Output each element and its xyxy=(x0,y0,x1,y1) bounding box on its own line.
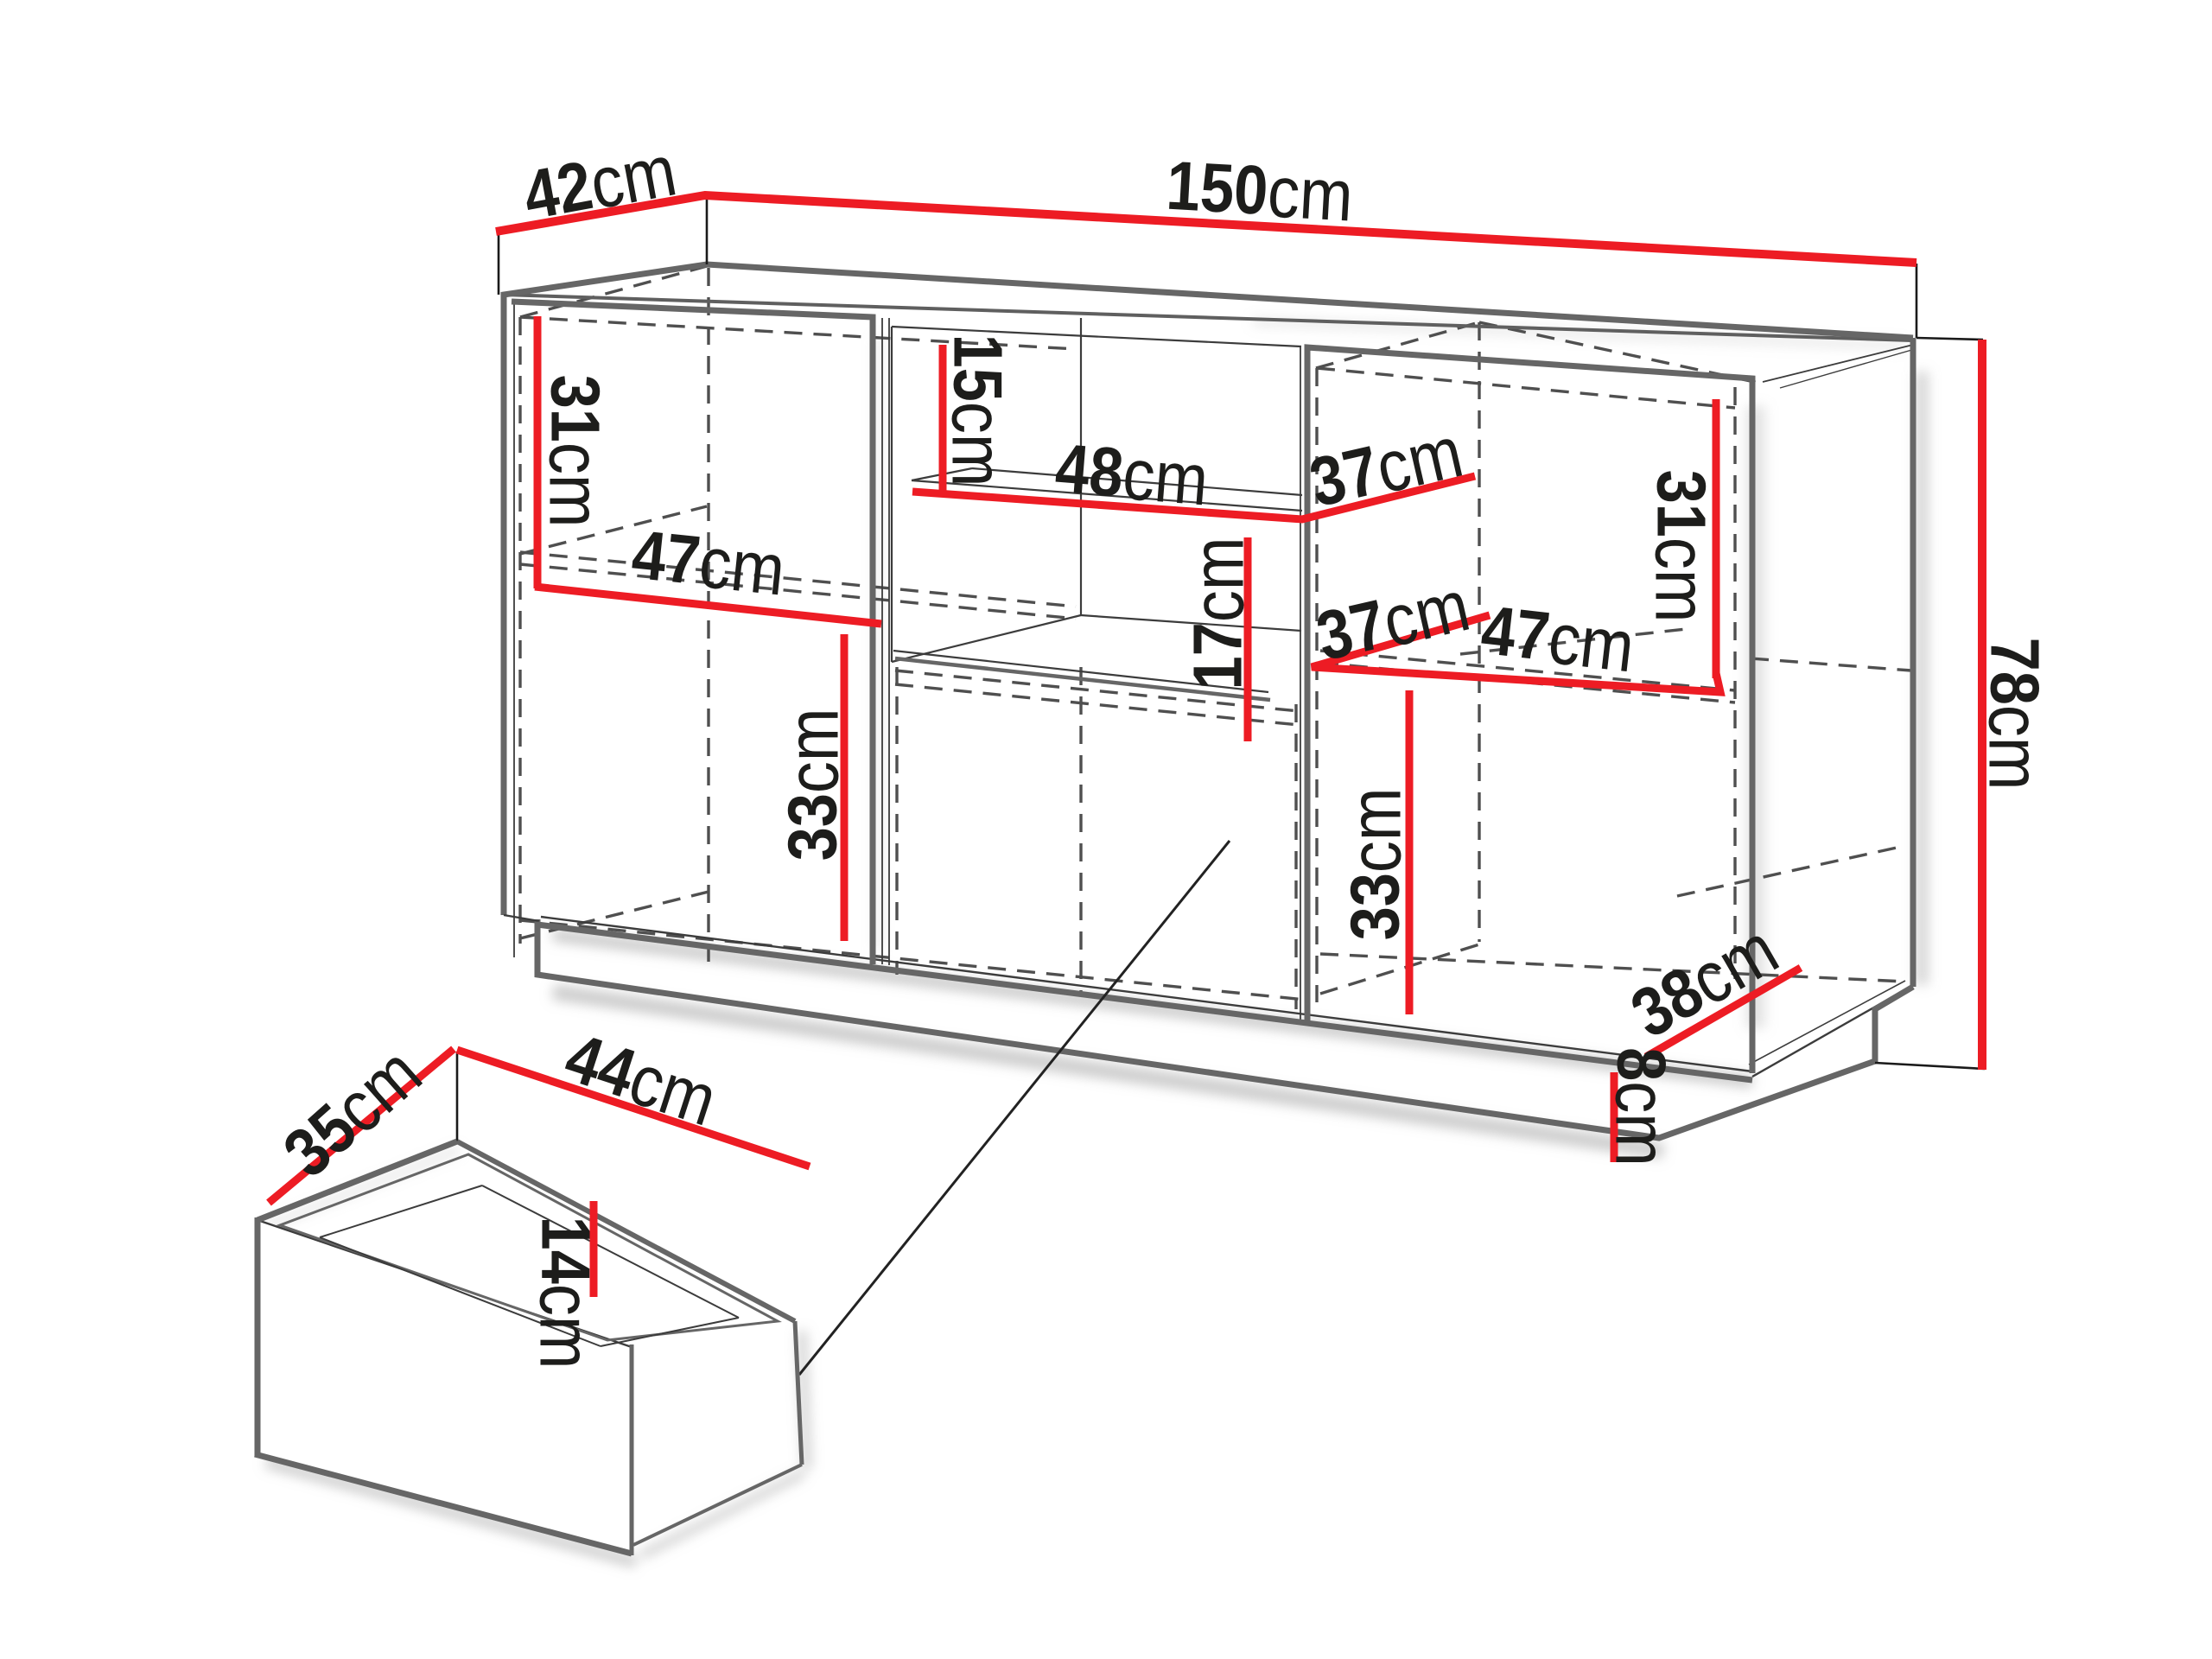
svg-text:33cm: 33cm xyxy=(1334,788,1415,941)
svg-text:8cm: 8cm xyxy=(1601,1047,1682,1166)
svg-text:150cm: 150cm xyxy=(1165,144,1356,236)
svg-text:14cm: 14cm xyxy=(525,1217,607,1370)
svg-text:78cm: 78cm xyxy=(1974,638,2056,791)
svg-text:31cm: 31cm xyxy=(535,375,616,528)
svg-text:48cm: 48cm xyxy=(1052,427,1211,520)
svg-text:33cm: 33cm xyxy=(772,709,853,861)
svg-text:15cm: 15cm xyxy=(938,334,1019,487)
svg-text:31cm: 31cm xyxy=(1641,470,1722,623)
svg-text:17cm: 17cm xyxy=(1177,537,1258,690)
